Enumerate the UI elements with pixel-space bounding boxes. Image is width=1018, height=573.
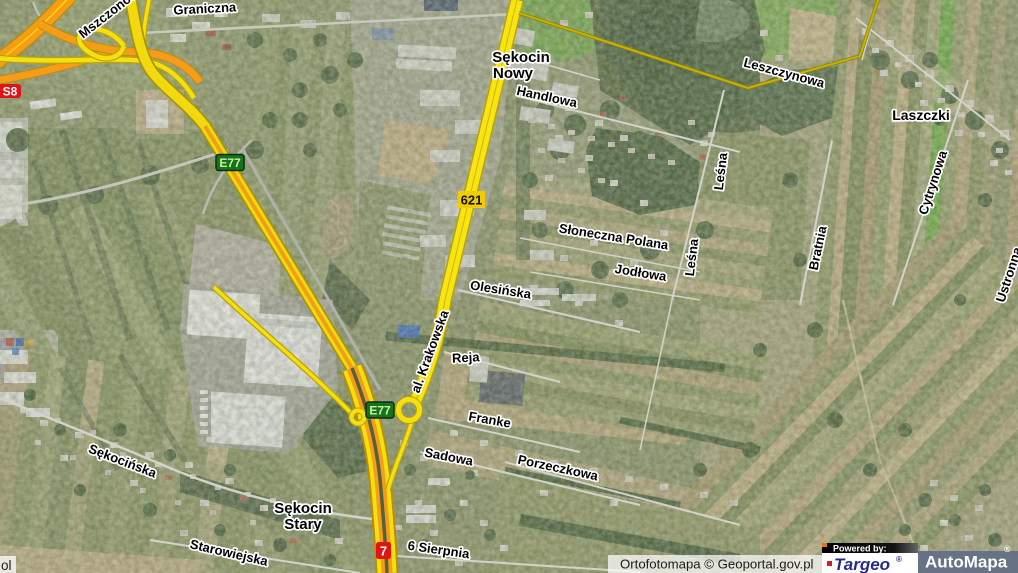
svg-text:621: 621 [461,193,483,208]
svg-text:Nowy: Nowy [493,65,534,82]
svg-text:Sękocin: Sękocin [274,500,332,517]
svg-text:E77: E77 [369,404,391,418]
svg-text:E77: E77 [219,156,241,170]
svg-text:Laszczki: Laszczki [892,107,950,123]
svg-text:Sękocin: Sękocin [492,49,550,66]
svg-text:S8: S8 [3,85,18,99]
svg-text:Targeo: Targeo [834,555,890,573]
svg-text:Stary: Stary [284,516,322,533]
svg-text:7: 7 [380,544,387,559]
svg-text:Powered by:: Powered by: [833,544,887,554]
svg-text:AutoMapa: AutoMapa [925,553,1008,572]
svg-text:ol: ol [1,558,12,573]
svg-text:Ortofotomapa © Geoportal.gov.p: Ortofotomapa © Geoportal.gov.pl [620,557,814,572]
svg-text:®: ® [1004,544,1011,554]
svg-text:Reja: Reja [452,349,481,365]
svg-text:®: ® [896,555,902,564]
